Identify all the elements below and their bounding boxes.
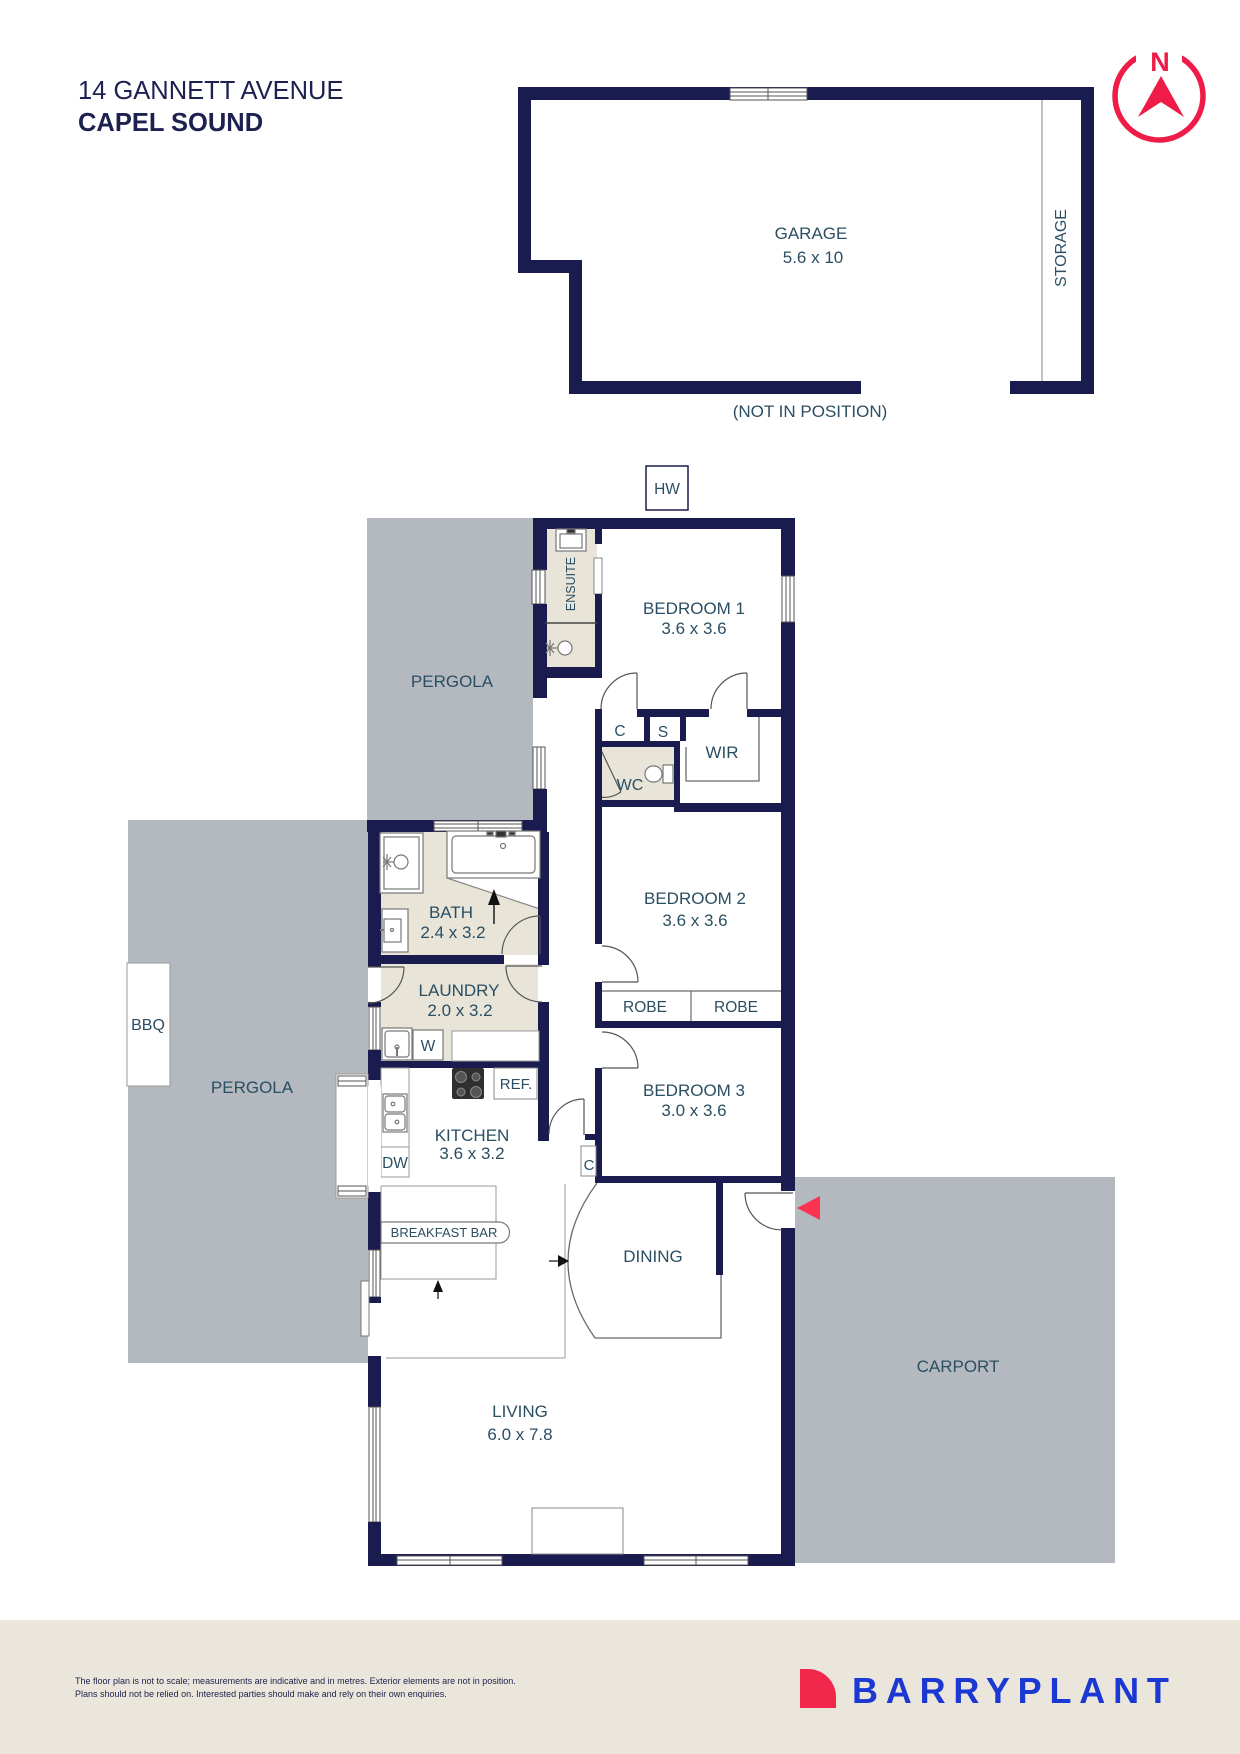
svg-text:(NOT IN POSITION): (NOT IN POSITION)	[733, 402, 888, 421]
svg-text:3.6 x 3.2: 3.6 x 3.2	[439, 1144, 504, 1163]
svg-text:CAPEL SOUND: CAPEL SOUND	[78, 109, 263, 137]
svg-text:C: C	[584, 1157, 595, 1174]
svg-text:CARPORT: CARPORT	[917, 1357, 1000, 1376]
svg-text:REF.: REF.	[500, 1076, 533, 1093]
svg-text:3.0 x 3.6: 3.0 x 3.6	[661, 1101, 726, 1120]
svg-text:PERGOLA: PERGOLA	[411, 672, 494, 691]
svg-text:BATH: BATH	[429, 903, 473, 922]
svg-text:ENSUITE: ENSUITE	[564, 557, 578, 611]
svg-text:PERGOLA: PERGOLA	[211, 1078, 294, 1097]
svg-text:BEDROOM 1: BEDROOM 1	[643, 599, 745, 618]
svg-text:BEDROOM 3: BEDROOM 3	[643, 1081, 745, 1100]
svg-text:ROBE: ROBE	[714, 999, 758, 1016]
svg-text:C: C	[614, 723, 625, 740]
svg-text:2.4 x 3.2: 2.4 x 3.2	[420, 923, 485, 942]
svg-text:KITCHEN: KITCHEN	[435, 1126, 510, 1145]
svg-text:LAUNDRY: LAUNDRY	[419, 981, 500, 1000]
svg-text:STORAGE: STORAGE	[1053, 209, 1070, 287]
svg-text:6.0 x 7.8: 6.0 x 7.8	[487, 1425, 552, 1444]
svg-text:3.6 x 3.6: 3.6 x 3.6	[661, 619, 726, 638]
svg-text:BBQ: BBQ	[131, 1017, 165, 1034]
svg-text:ROBE: ROBE	[623, 999, 667, 1016]
svg-text:DW: DW	[382, 1155, 408, 1172]
svg-text:WIR: WIR	[705, 743, 738, 762]
svg-text:BEDROOM 2: BEDROOM 2	[644, 889, 746, 908]
svg-text:WC: WC	[617, 777, 644, 794]
svg-text:W: W	[421, 1038, 436, 1055]
svg-text:5.6 x 10: 5.6 x 10	[783, 248, 844, 267]
svg-text:2.0 x 3.2: 2.0 x 3.2	[427, 1001, 492, 1020]
svg-text:HW: HW	[654, 481, 680, 498]
svg-text:3.6 x 3.6: 3.6 x 3.6	[662, 911, 727, 930]
svg-text:14 GANNETT AVENUE: 14 GANNETT AVENUE	[78, 77, 343, 105]
svg-text:The floor plan is not to scale: The floor plan is not to scale; measurem…	[75, 1676, 516, 1686]
svg-text:N: N	[1150, 47, 1170, 77]
svg-text:DINING: DINING	[623, 1247, 683, 1266]
svg-text:GARAGE: GARAGE	[775, 224, 848, 243]
svg-text:Plans should not be relied on.: Plans should not be relied on. Intereste…	[75, 1689, 447, 1699]
svg-text:BREAKFAST BAR: BREAKFAST BAR	[391, 1225, 498, 1240]
svg-text:S: S	[658, 724, 668, 741]
svg-text:LIVING: LIVING	[492, 1402, 548, 1421]
svg-text:BARRYPLANT: BARRYPLANT	[852, 1670, 1177, 1711]
